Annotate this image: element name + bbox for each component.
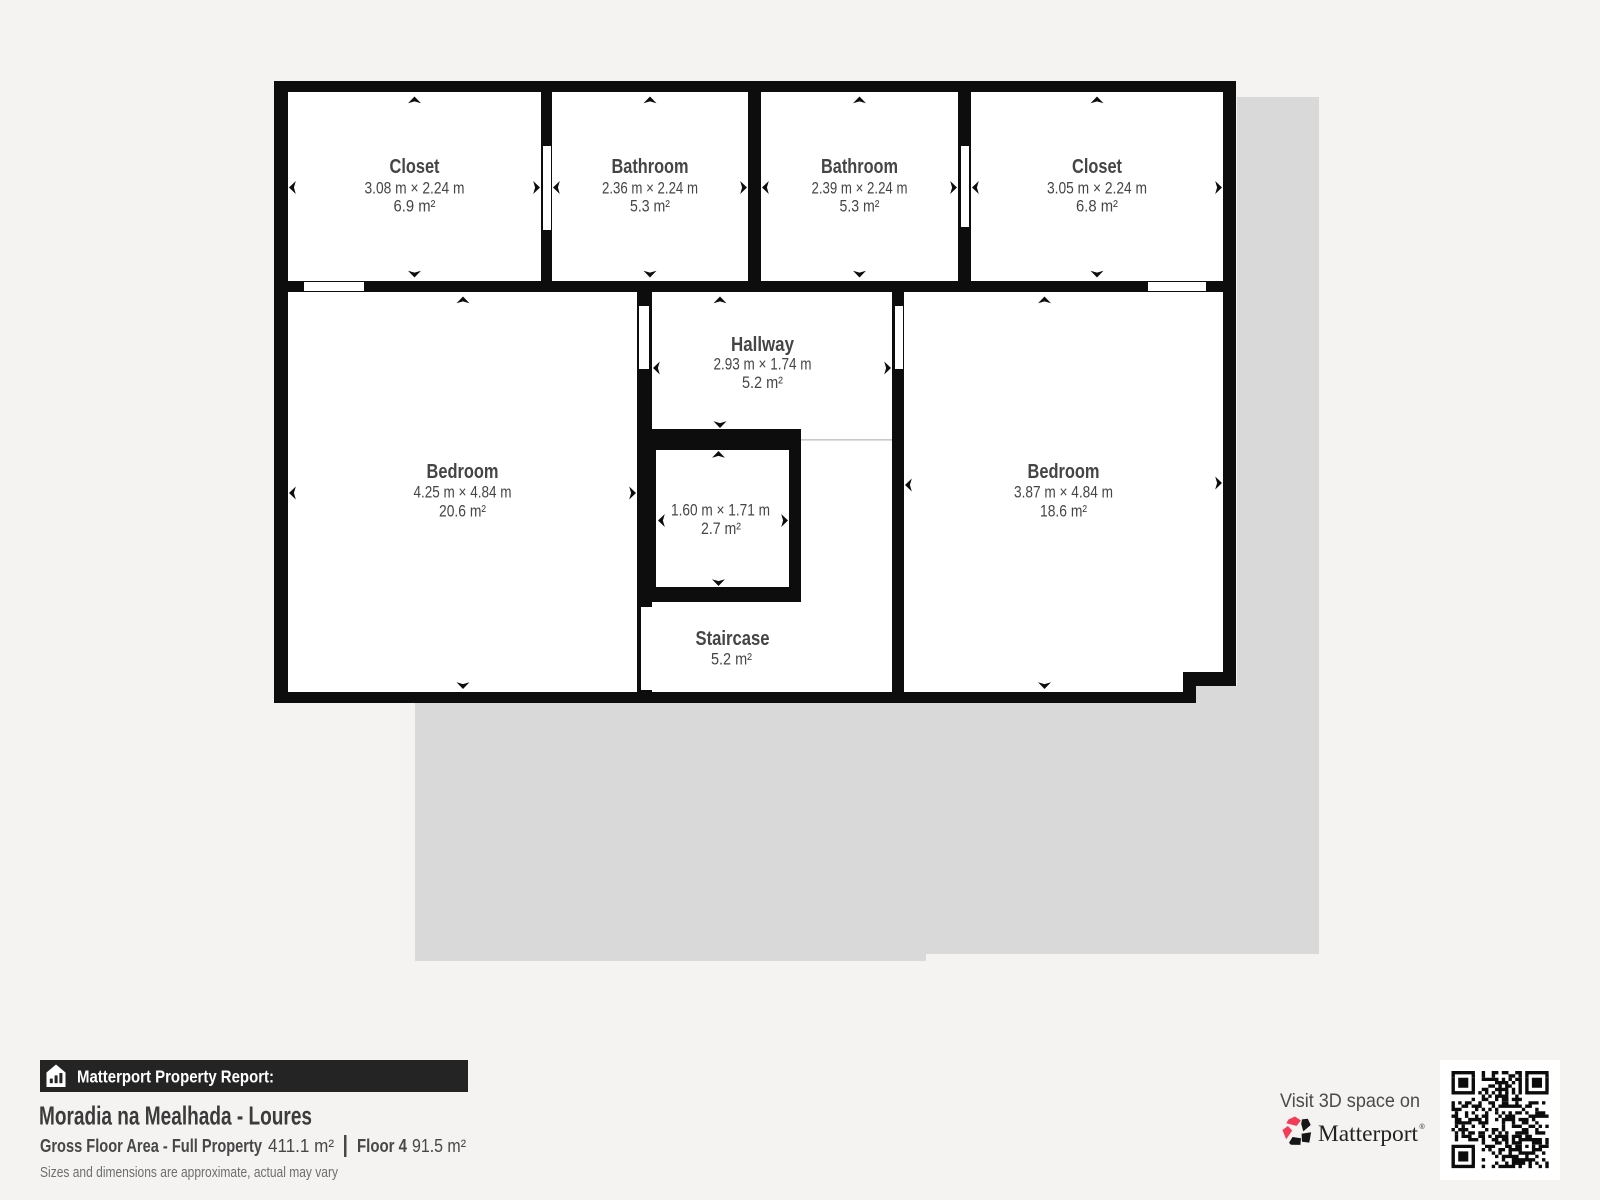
svg-text:5.2 m²: 5.2 m² [711, 651, 753, 669]
svg-text:4.25 m × 4.84 m: 4.25 m × 4.84 m [414, 484, 512, 502]
svg-text:6.9 m²: 6.9 m² [394, 198, 437, 216]
svg-text:Floor 4: Floor 4 [357, 1136, 407, 1156]
svg-text:411.1 m²: 411.1 m² [268, 1136, 334, 1156]
svg-text:Gross Floor Area - Full Proper: Gross Floor Area - Full Property [40, 1136, 262, 1156]
svg-text:91.5 m²: 91.5 m² [412, 1136, 466, 1156]
svg-text:Sizes and dimensions are appro: Sizes and dimensions are approximate, ac… [40, 1165, 339, 1181]
svg-text:20.6 m²: 20.6 m² [439, 503, 487, 521]
svg-text:3.87 m × 4.84 m: 3.87 m × 4.84 m [1014, 484, 1113, 502]
svg-text:Staircase: Staircase [696, 628, 770, 650]
svg-text:2.39 m × 2.24 m: 2.39 m × 2.24 m [812, 180, 908, 198]
svg-text:®: ® [1420, 1123, 1426, 1131]
svg-text:2.93 m × 1.74 m: 2.93 m × 1.74 m [714, 356, 812, 374]
svg-text:Matterport: Matterport [1318, 1121, 1418, 1147]
svg-text:Bathroom: Bathroom [612, 156, 689, 178]
svg-text:Bedroom: Bedroom [1028, 461, 1100, 483]
svg-text:5.3 m²: 5.3 m² [840, 198, 881, 216]
svg-text:6.8 m²: 6.8 m² [1076, 198, 1119, 216]
svg-text:2.36 m × 2.24 m: 2.36 m × 2.24 m [602, 180, 698, 198]
svg-text:Hallway: Hallway [731, 334, 795, 356]
svg-text:Visit 3D space on: Visit 3D space on [1280, 1090, 1420, 1112]
svg-text:2.7 m²: 2.7 m² [701, 520, 742, 538]
svg-text:5.3 m²: 5.3 m² [630, 198, 671, 216]
svg-text:3.05 m × 2.24 m: 3.05 m × 2.24 m [1047, 180, 1147, 198]
svg-text:Bedroom: Bedroom [427, 461, 499, 483]
svg-text:Moradia na Mealhada - Loures: Moradia na Mealhada - Loures [39, 1101, 312, 1131]
svg-text:1.60 m × 1.71 m: 1.60 m × 1.71 m [671, 502, 770, 520]
svg-text:Closet: Closet [1072, 156, 1122, 178]
svg-text:3.08 m × 2.24 m: 3.08 m × 2.24 m [365, 180, 465, 198]
svg-text:18.6 m²: 18.6 m² [1040, 503, 1088, 521]
svg-text:5.2 m²: 5.2 m² [742, 374, 784, 392]
svg-text:Bathroom: Bathroom [821, 156, 898, 178]
svg-text:Closet: Closet [390, 156, 440, 178]
svg-text:Matterport Property Report:: Matterport Property Report: [77, 1067, 274, 1087]
